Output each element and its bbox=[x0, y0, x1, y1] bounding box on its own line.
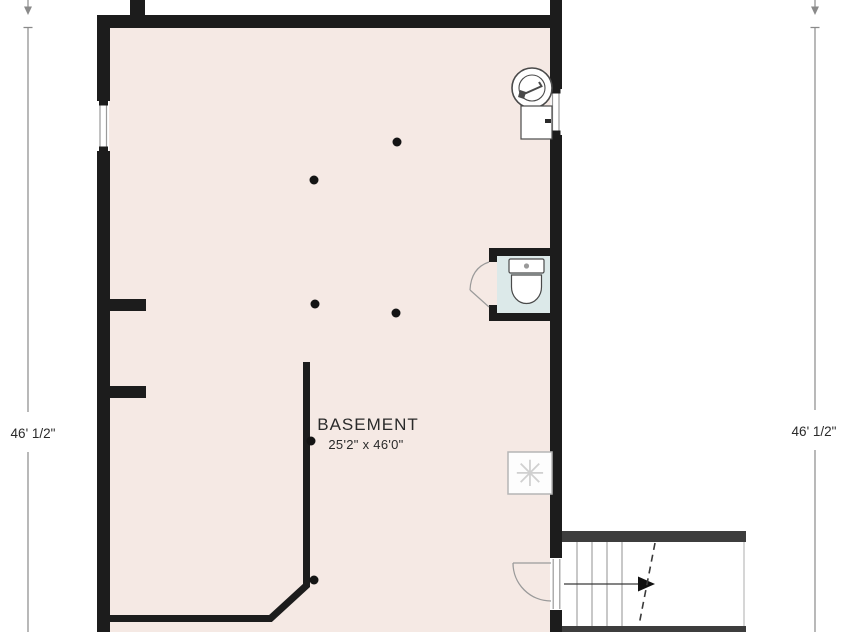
dim-line bbox=[811, 28, 820, 632]
dimension-label-left: 46' 1/2" bbox=[11, 426, 56, 441]
top-wall bbox=[97, 15, 562, 28]
dim-arrowhead bbox=[811, 7, 819, 16]
toilet-flush-button bbox=[524, 263, 529, 268]
window-cap bbox=[552, 89, 561, 94]
ac-unit-glyph: ✳ bbox=[515, 454, 545, 495]
stairwell bbox=[562, 531, 746, 632]
stair-top-wall bbox=[562, 531, 746, 542]
utility-panel-handle bbox=[545, 119, 551, 123]
dimension-line-right: 46' 1/2" bbox=[792, 0, 837, 632]
column bbox=[310, 176, 319, 185]
room-labels: BASEMENT 25'2" x 46'0" bbox=[317, 415, 419, 452]
room-size-label: 25'2" x 46'0" bbox=[328, 437, 403, 452]
ac-unit-icon: ✳ bbox=[508, 452, 552, 495]
top-wall-stub bbox=[130, 0, 145, 16]
wc-bottom-wall bbox=[489, 313, 550, 321]
water-heater-outer bbox=[512, 68, 552, 108]
dimension-line-left: 46' 1/2" bbox=[11, 0, 56, 632]
column bbox=[307, 437, 316, 446]
column bbox=[310, 576, 319, 585]
dim-line bbox=[24, 28, 33, 632]
column bbox=[311, 300, 320, 309]
left-wall-upper bbox=[97, 15, 110, 101]
toilet-icon bbox=[509, 259, 544, 304]
left-wall-stub bbox=[108, 299, 146, 311]
room-name-label: BASEMENT bbox=[317, 415, 419, 434]
wc-left-wall-upper bbox=[489, 248, 497, 262]
floor-plan-page: ✳ 46' 1/2" 46' 1/2" bbox=[0, 0, 843, 632]
toilet-bowl bbox=[512, 275, 542, 304]
basement-floor-plan: ✳ 46' 1/2" 46' 1/2" bbox=[0, 0, 843, 632]
right-wall-lower bbox=[550, 610, 562, 632]
wc-top-wall bbox=[489, 248, 550, 256]
left-wall-stub bbox=[108, 386, 146, 398]
window-cap bbox=[552, 131, 561, 136]
dim-arrowhead bbox=[24, 7, 32, 16]
water-heater-icon bbox=[512, 68, 552, 108]
wc-left-wall-lower bbox=[489, 305, 497, 321]
right-wall-upper bbox=[550, 0, 562, 89]
window-cap bbox=[99, 147, 108, 152]
basement-floor-area bbox=[100, 20, 558, 632]
dimension-label-right: 46' 1/2" bbox=[792, 424, 837, 439]
column bbox=[393, 138, 402, 147]
utility-panel-icon bbox=[521, 106, 552, 139]
stair-bottom-wall bbox=[562, 626, 746, 632]
window-cap bbox=[99, 101, 108, 106]
left-wall-window-icon bbox=[98, 101, 109, 151]
column bbox=[392, 309, 401, 318]
